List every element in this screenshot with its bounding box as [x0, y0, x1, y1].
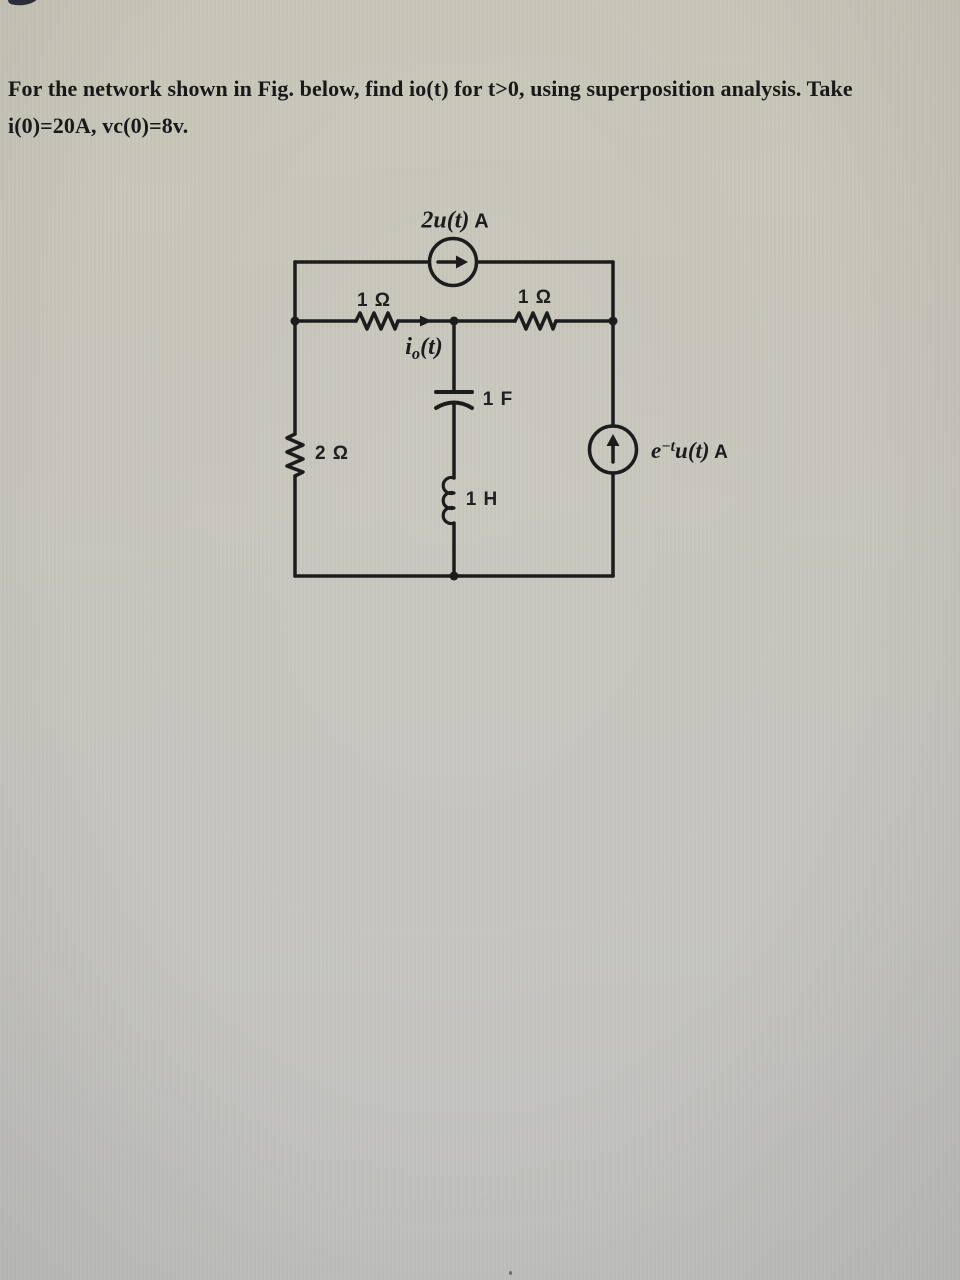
- resistor-top-left-symbol: [356, 313, 398, 329]
- node-dot: [450, 317, 459, 326]
- node-dot: [450, 572, 459, 581]
- resistor-left-symbol: [287, 434, 303, 476]
- top-current-source: [430, 239, 477, 286]
- node-dot: [291, 317, 300, 326]
- inductor-symbol: [443, 478, 454, 524]
- top-source-label: 2u(t) A: [421, 208, 488, 235]
- node-dot: [609, 317, 618, 326]
- resistor-top-right-label: 1 Ω: [518, 287, 552, 309]
- photographed-problem-page: { "problem": { "line1": "For the network…: [0, 0, 960, 1280]
- resistor-top-left-label: 1 Ω: [357, 290, 391, 312]
- io-current-arrow: [420, 316, 432, 327]
- arrow-up-head: [607, 434, 620, 446]
- arrow-right-head: [456, 256, 468, 269]
- output-current-label: io(t): [405, 334, 442, 364]
- capacitor-label: 1 F: [483, 389, 513, 411]
- inductor-label: 1 H: [466, 489, 499, 511]
- resistor-left-label: 2 Ω: [315, 443, 349, 465]
- resistor-top-right-symbol: [515, 313, 556, 329]
- circuit-figure: 2u(t) A 1 Ω 1 Ω io(t) 1 F 2 Ω 1 H e−tu(t…: [0, 0, 960, 1280]
- right-current-source: [590, 426, 637, 473]
- circuit-diagram: [0, 0, 960, 1280]
- right-source-label: e−tu(t) A: [651, 438, 728, 464]
